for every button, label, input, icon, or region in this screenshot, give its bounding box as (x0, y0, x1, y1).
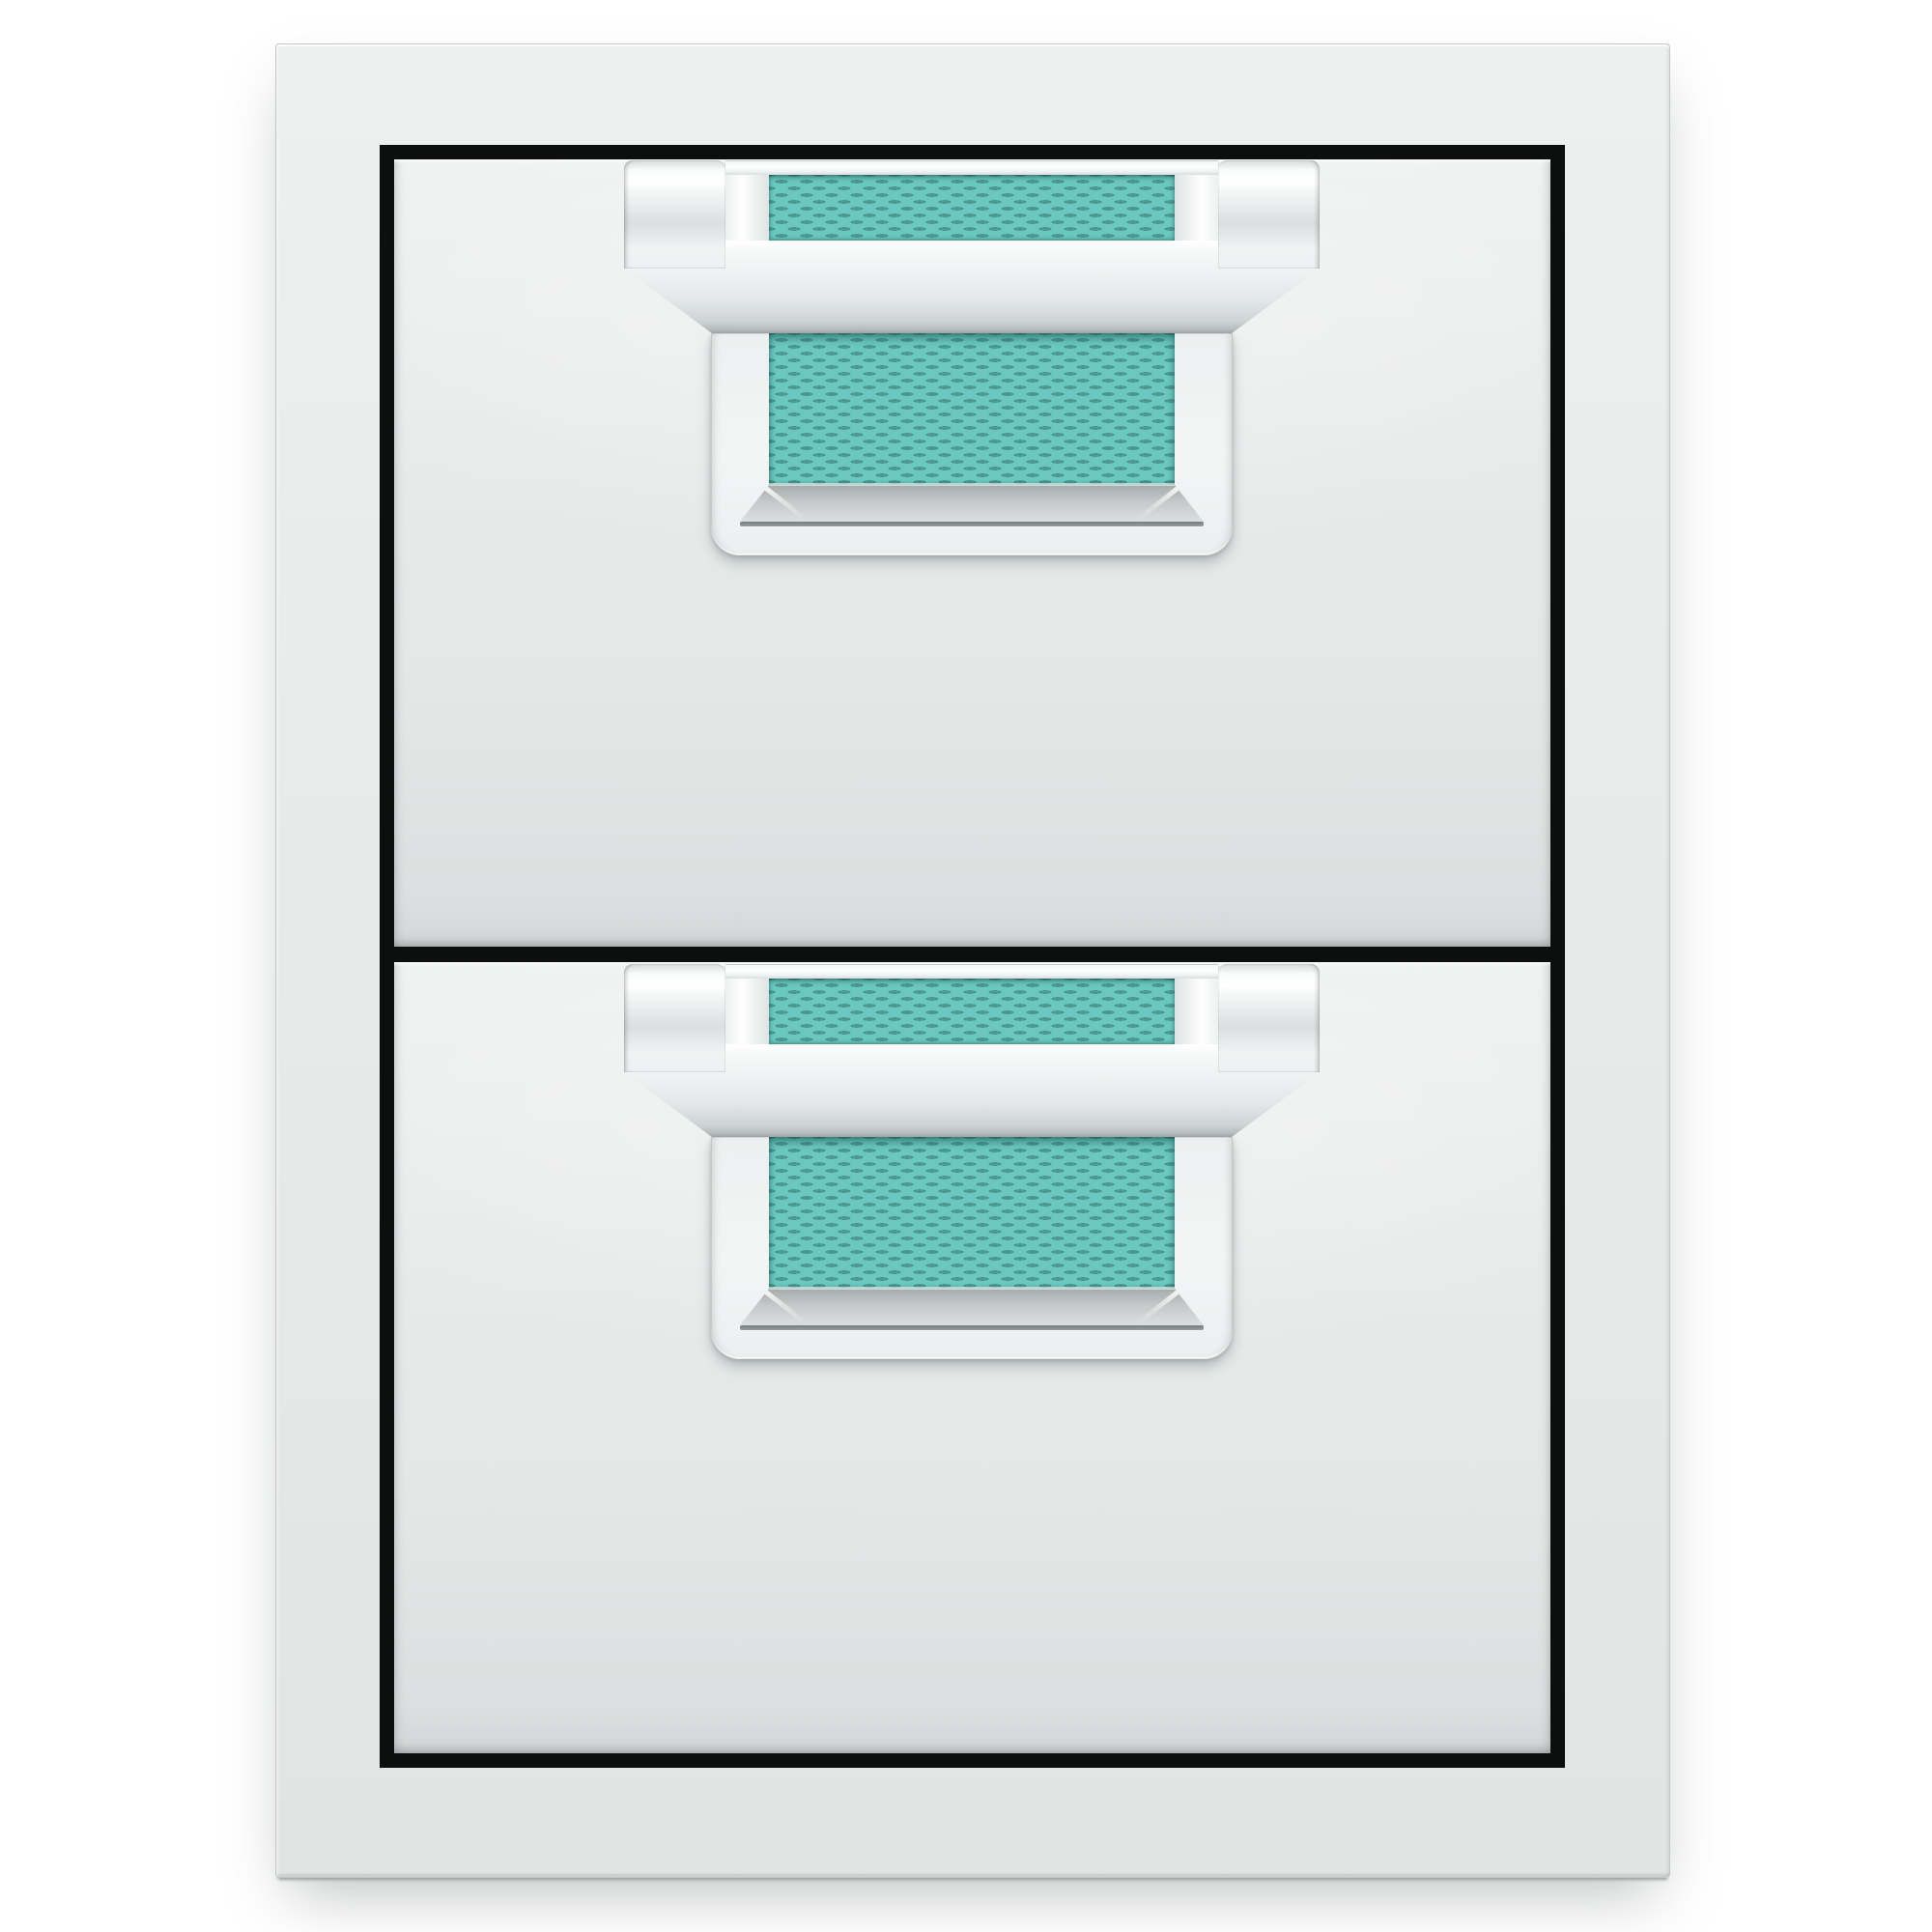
product-image (0, 0, 1932, 1932)
handle-accent-strip (769, 979, 1175, 1044)
drawer-2-handle[interactable] (624, 964, 1320, 1362)
drawer-divider-groove (380, 947, 1565, 962)
sill-miter-left (760, 485, 808, 522)
pocket-seam-line (740, 522, 1204, 526)
pocket-seam-line (740, 1325, 1204, 1330)
handle-top-flange (725, 160, 1218, 175)
handle-left-post (725, 175, 769, 241)
handle-right-mount (1218, 160, 1320, 269)
handle-recess-pocket (711, 333, 1233, 555)
handle-recess-pocket (711, 1137, 1233, 1359)
pocket-bevel-sill (740, 1289, 1204, 1325)
sill-top-highlight (769, 483, 1175, 486)
sill-miter-right (1136, 1289, 1183, 1325)
pocket-bevel-sill (740, 485, 1204, 522)
sill-miter-right (1136, 485, 1183, 522)
handle-left-mount (624, 160, 725, 269)
handle-right-post (1175, 175, 1218, 241)
pocket-accent-panel (769, 333, 1175, 485)
drawer-1-handle[interactable] (624, 160, 1320, 558)
handle-grip-bar[interactable] (624, 241, 1320, 333)
pocket-accent-panel (769, 1137, 1175, 1289)
sill-miter-left (760, 1289, 808, 1325)
handle-left-post (725, 979, 769, 1044)
handle-right-post (1175, 979, 1218, 1044)
handle-top-flange (725, 964, 1218, 979)
handle-accent-strip (769, 175, 1175, 241)
sill-top-highlight (769, 1287, 1175, 1290)
handle-right-mount (1218, 964, 1320, 1072)
handle-grip-bar[interactable] (624, 1044, 1320, 1137)
handle-left-mount (624, 964, 725, 1072)
